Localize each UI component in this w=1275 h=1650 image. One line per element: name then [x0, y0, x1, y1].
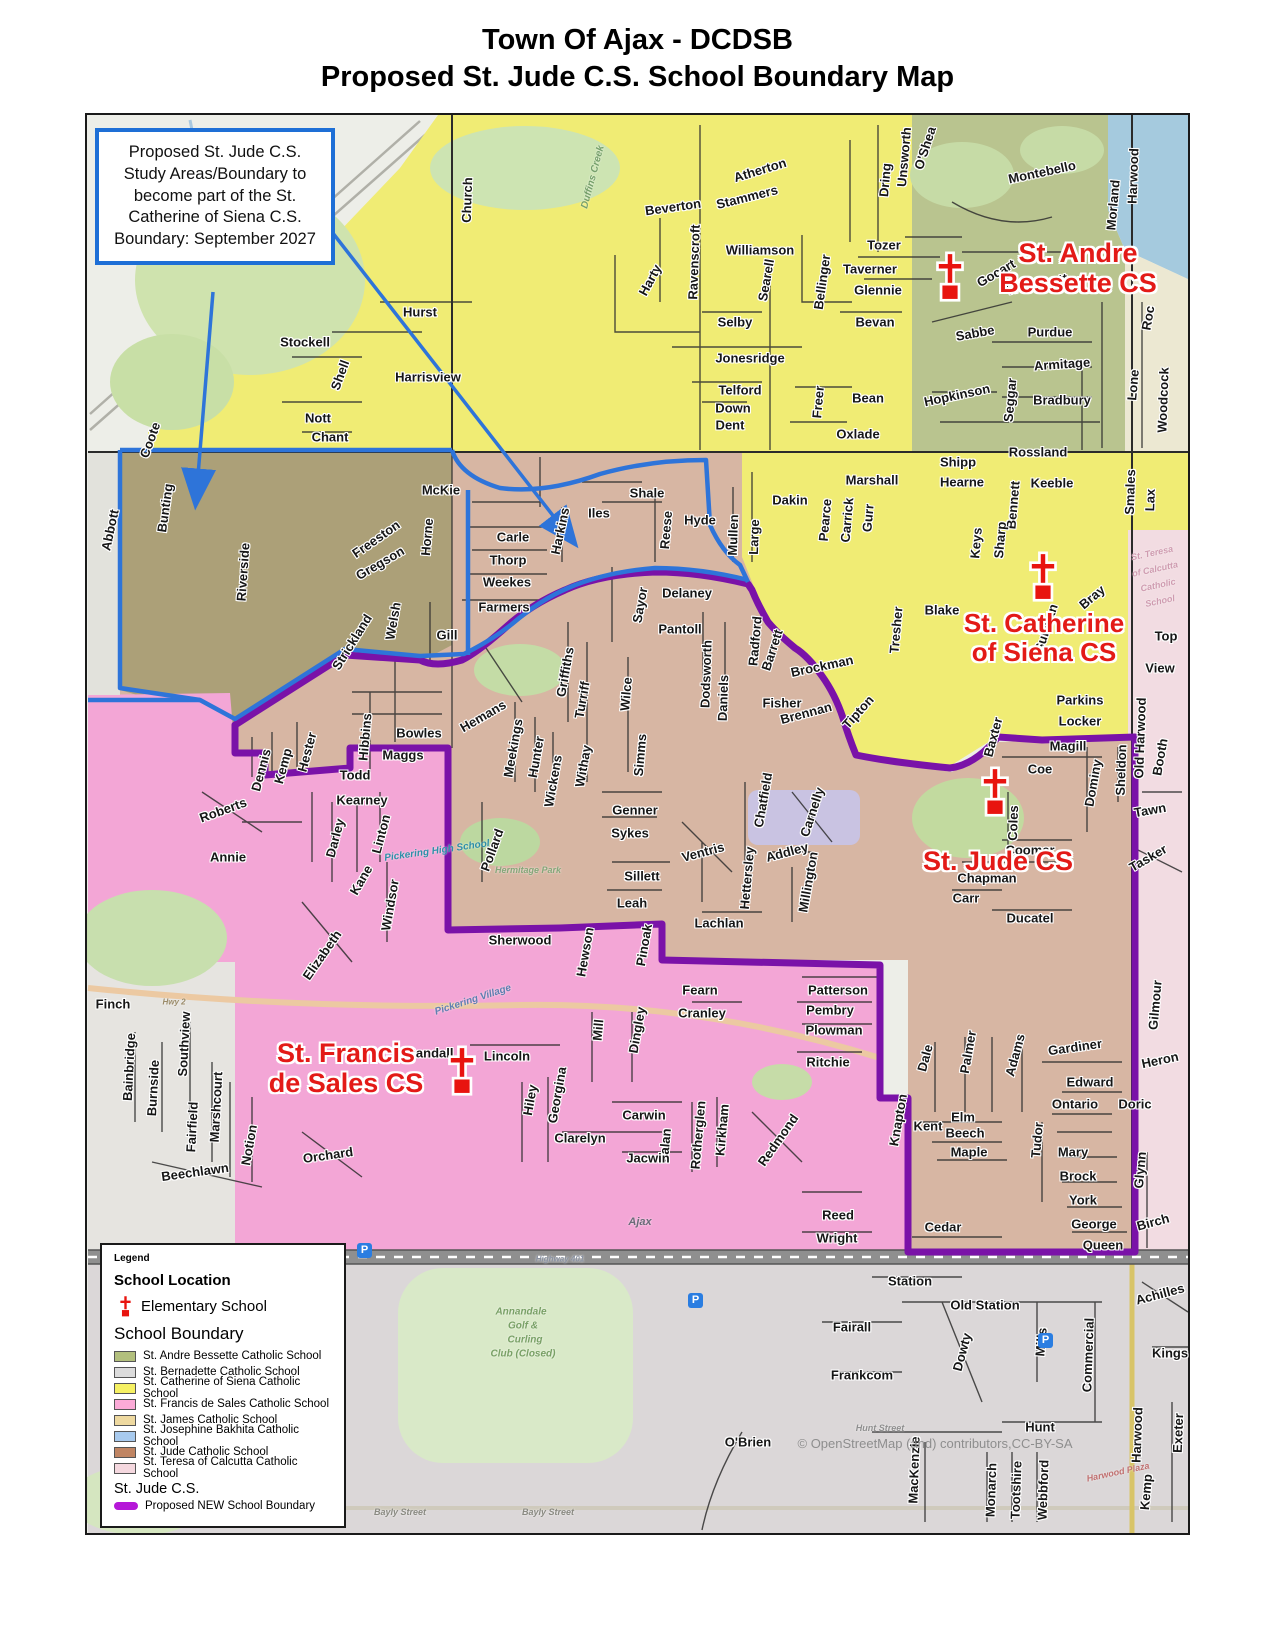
legend-row-label: St. Francis de Sales Catholic School: [143, 1398, 329, 1410]
legend: Legend School Location Elementary School…: [100, 1243, 346, 1528]
proposed-boundary-swatch: [114, 1502, 138, 1510]
legend-items: St. Andre Bessette Catholic SchoolSt. Be…: [114, 1348, 334, 1476]
legend-row-label: St. Andre Bessette Catholic School: [143, 1350, 321, 1362]
parking-icon: P: [1038, 1333, 1053, 1348]
legend-swatch: [114, 1415, 136, 1426]
legend-row: St. Teresa of Calcutta Catholic School: [114, 1460, 334, 1476]
legend-title: Legend: [114, 1253, 334, 1264]
callout-text: Proposed St. Jude C.S. Study Areas/Bound…: [114, 143, 316, 248]
legend-row: St. Catherine of Siena Catholic School: [114, 1380, 334, 1396]
legend-row: St. Josephine Bakhita Catholic School: [114, 1428, 334, 1444]
legend-row-label: St. Teresa of Calcutta Catholic School: [143, 1456, 334, 1480]
legend-swatch: [114, 1463, 136, 1474]
legend-swatch: [114, 1447, 136, 1458]
legend-location-header: School Location: [114, 1272, 334, 1289]
page: Town Of Ajax - DCDSB Proposed St. Jude C…: [0, 0, 1275, 1650]
legend-row: St. Francis de Sales Catholic School: [114, 1396, 334, 1412]
parking-icon: P: [688, 1293, 703, 1308]
legend-proposed-row: Proposed NEW School Boundary: [114, 1500, 334, 1512]
elementary-school-icon: [118, 1295, 133, 1318]
legend-row: St. Andre Bessette Catholic School: [114, 1348, 334, 1364]
attribution: © OpenStreetMap (and) contributors,CC-BY…: [798, 1436, 1073, 1451]
legend-swatch: [114, 1351, 136, 1362]
parking-icon: P: [357, 1243, 372, 1258]
proposed-boundary-label: Proposed NEW School Boundary: [145, 1500, 315, 1512]
elementary-school-label: Elementary School: [141, 1298, 267, 1315]
legend-row-label: St. Catherine of Siena Catholic School: [143, 1376, 334, 1400]
legend-swatch: [114, 1431, 136, 1442]
legend-swatch: [114, 1383, 136, 1394]
callout-box: Proposed St. Jude C.S. Study Areas/Bound…: [95, 128, 335, 265]
legend-swatch: [114, 1367, 136, 1378]
legend-swatch: [114, 1399, 136, 1410]
legend-st-jude-header: St. Jude C.S.: [114, 1481, 334, 1497]
legend-row-label: St. Josephine Bakhita Catholic School: [143, 1424, 334, 1448]
legend-boundary-header: School Boundary: [114, 1324, 334, 1344]
